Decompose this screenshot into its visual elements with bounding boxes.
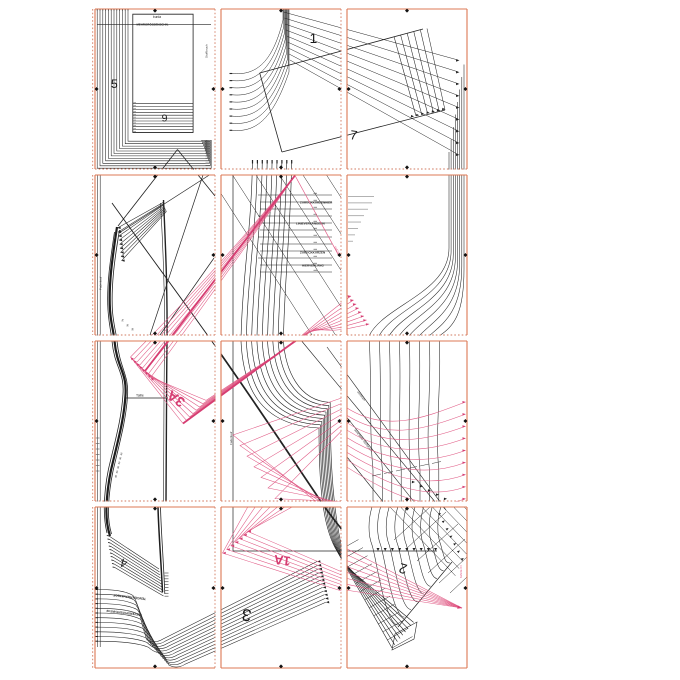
svg-text:1: 1	[310, 30, 318, 46]
svg-text:Stoffbruch: Stoffbruch	[205, 44, 209, 58]
svg-text:Fadenlauf: Fadenlauf	[99, 276, 103, 290]
svg-text:MADE IN: MADE IN	[459, 565, 463, 578]
svg-text:ZURÜCKKÜRZENHIER: ZURÜCKKÜRZENHIER	[300, 200, 333, 205]
svg-text:5: 5	[111, 77, 118, 91]
svg-text:6: 6	[162, 112, 168, 124]
svg-text:Fadenlauf: Fadenlauf	[229, 431, 233, 445]
svg-text:burda: burda	[153, 15, 161, 19]
svg-text:MEHRGRÖSSENSCHN.: MEHRGRÖSSENSCHN.	[137, 22, 169, 26]
svg-text:1A: 1A	[272, 552, 291, 569]
svg-text:Taille: Taille	[136, 394, 144, 398]
svg-text:ZURÜCKKÜRZEN: ZURÜCKKÜRZEN	[300, 250, 325, 255]
